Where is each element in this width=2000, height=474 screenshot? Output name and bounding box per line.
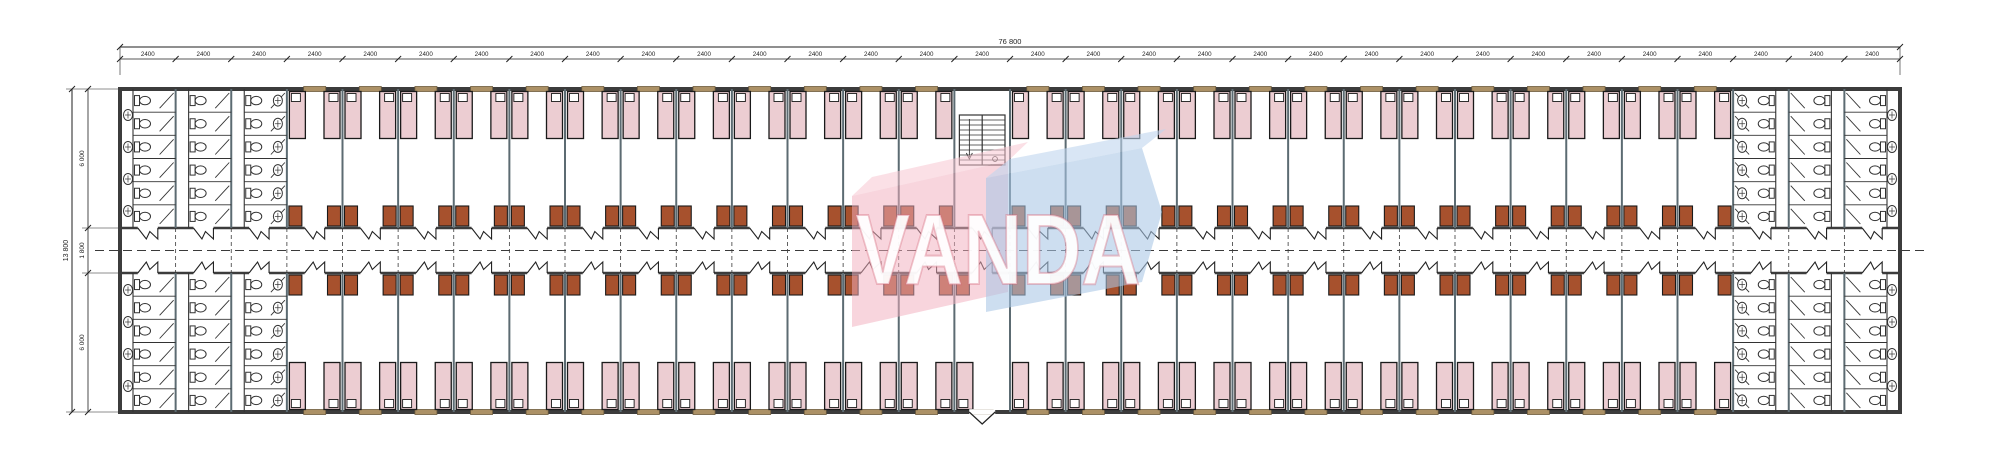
window	[1639, 87, 1661, 92]
pillow	[903, 400, 912, 408]
pillow	[1275, 400, 1284, 408]
dimension-label: 2400	[363, 51, 377, 58]
wc-icon	[1870, 189, 1881, 197]
pillow	[848, 400, 857, 408]
door-opening	[305, 225, 325, 230]
door-opening	[1640, 225, 1660, 230]
room-module-top	[567, 87, 619, 240]
pillow	[1608, 94, 1617, 102]
wc-icon	[1758, 96, 1769, 104]
wardrobe	[1235, 206, 1248, 226]
wc-icon	[1825, 280, 1830, 290]
pillow	[1664, 94, 1673, 102]
dimension-label: 2400	[1810, 51, 1824, 58]
pillow	[1070, 400, 1079, 408]
wardrobe	[1568, 275, 1581, 295]
pillow	[1163, 94, 1172, 102]
wardrobe	[1457, 206, 1470, 226]
door-opening	[969, 409, 995, 415]
pillow	[1515, 94, 1524, 102]
pillow	[347, 400, 356, 408]
dimension-label: 2400	[642, 51, 656, 58]
pillow	[736, 94, 745, 102]
wc-icon	[135, 211, 140, 221]
door-opening	[1250, 270, 1270, 275]
pillow	[1497, 400, 1506, 408]
sanitary-bay	[189, 273, 232, 412]
pillow	[1404, 94, 1413, 102]
wc-icon	[195, 189, 206, 197]
watermark-text: VANDA	[856, 194, 1141, 306]
dimension-label: 2400	[197, 51, 211, 58]
wardrobe	[1290, 206, 1303, 226]
wardrobe	[494, 206, 507, 226]
window	[1583, 87, 1605, 92]
window	[1082, 410, 1104, 415]
wc-icon	[1870, 327, 1881, 335]
door-opening	[1417, 270, 1437, 275]
wc-icon	[190, 165, 195, 175]
wc-icon	[251, 327, 262, 335]
door-opening	[1640, 270, 1660, 275]
pillow	[1682, 94, 1691, 102]
dimension-label: 2400	[1476, 51, 1490, 58]
door-opening	[805, 225, 825, 230]
window	[1472, 87, 1494, 92]
pillow	[1330, 94, 1339, 102]
pillow	[1515, 400, 1524, 408]
pillow	[1460, 94, 1469, 102]
room-module-top	[790, 87, 842, 240]
wc-icon	[251, 120, 262, 128]
window	[1305, 410, 1327, 415]
pillow	[1181, 94, 1190, 102]
wardrobe	[1457, 275, 1470, 295]
wc-icon	[251, 212, 262, 220]
wardrobe	[328, 206, 341, 226]
wardrobe	[400, 206, 413, 226]
wardrobe	[345, 206, 358, 226]
pillow	[1571, 400, 1580, 408]
wardrobe	[1624, 275, 1637, 295]
wardrobe	[439, 275, 452, 295]
pillow	[830, 400, 839, 408]
wc-icon	[1881, 326, 1886, 336]
pillow	[1720, 94, 1729, 102]
pillow	[1293, 94, 1302, 102]
wc-icon	[140, 396, 151, 404]
room-module-bottom	[1290, 262, 1342, 415]
wc-icon	[140, 120, 151, 128]
wc-icon	[135, 188, 140, 198]
wc-icon	[135, 280, 140, 290]
wc-icon	[1814, 304, 1825, 312]
wardrobe	[1496, 206, 1509, 226]
door-opening	[1751, 270, 1771, 275]
wc-icon	[1769, 188, 1774, 198]
wc-icon	[246, 326, 251, 336]
door-opening	[527, 225, 547, 230]
wardrobe	[678, 275, 691, 295]
window	[1527, 87, 1549, 92]
wc-icon	[246, 165, 251, 175]
wc-icon	[251, 350, 262, 358]
floor-plan-svg: 76 8002400240024002400240024002400240024…	[0, 0, 2000, 474]
door-opening	[138, 225, 158, 230]
wardrobe	[1401, 275, 1414, 295]
room-module-top	[1346, 87, 1398, 240]
wc-icon	[135, 395, 140, 405]
wc-icon	[1825, 188, 1830, 198]
wardrobe	[328, 275, 341, 295]
dimension-label: 2400	[141, 51, 155, 58]
wardrobe	[773, 206, 786, 226]
wardrobe	[1551, 275, 1564, 295]
room-module-top	[456, 87, 508, 240]
door-opening	[360, 225, 380, 230]
door-opening	[416, 270, 436, 275]
wc-icon	[195, 166, 206, 174]
pillow	[1108, 400, 1117, 408]
window	[1249, 87, 1271, 92]
pillow	[1386, 94, 1395, 102]
wc-icon	[251, 280, 262, 288]
sanitary-right	[1733, 89, 1896, 412]
pillow	[941, 94, 950, 102]
pillow	[385, 400, 394, 408]
door-opening	[638, 225, 658, 230]
room-module-top	[289, 87, 341, 240]
wardrobe	[383, 206, 396, 226]
dimension-label: 2400	[1365, 51, 1379, 58]
door-opening	[193, 270, 213, 275]
room-module-top	[511, 87, 563, 240]
window	[526, 87, 548, 92]
pillow	[496, 94, 505, 102]
room-module-top	[734, 87, 786, 240]
window	[359, 410, 381, 415]
wardrobe	[1607, 206, 1620, 226]
pillow	[1682, 400, 1691, 408]
dimension-label: 2400	[475, 51, 489, 58]
wardrobe	[1718, 275, 1731, 295]
pillow	[663, 400, 672, 408]
pillow	[1126, 400, 1135, 408]
pillow	[1553, 94, 1562, 102]
pillow	[1052, 94, 1061, 102]
door-opening	[694, 225, 714, 230]
wardrobe	[289, 206, 302, 226]
dimension-label: 2400	[586, 51, 600, 58]
window	[304, 410, 326, 415]
wc-icon	[1870, 373, 1881, 381]
pillow	[1571, 94, 1580, 102]
pillow	[1497, 94, 1506, 102]
wc-icon	[140, 189, 151, 197]
window	[1138, 87, 1160, 92]
dimension-label: 2400	[1532, 51, 1546, 58]
wardrobe	[400, 275, 413, 295]
window	[916, 87, 938, 92]
wardrobe	[1663, 275, 1676, 295]
wc-icon	[1814, 373, 1825, 381]
wc-icon	[195, 327, 206, 335]
room-module-bottom	[790, 262, 842, 415]
room-module-bottom	[1624, 262, 1676, 415]
wc-icon	[195, 96, 206, 104]
wc-icon	[190, 372, 195, 382]
wardrobe	[494, 275, 507, 295]
wardrobe	[606, 206, 619, 226]
pillow	[959, 400, 968, 408]
window	[804, 87, 826, 92]
pillow	[1348, 400, 1357, 408]
door-opening	[249, 270, 269, 275]
door-opening	[1695, 270, 1715, 275]
window	[1138, 410, 1160, 415]
wc-icon	[246, 188, 251, 198]
wc-icon	[1870, 396, 1881, 404]
wardrobe	[383, 275, 396, 295]
wc-icon	[1870, 120, 1881, 128]
wc-icon	[140, 373, 151, 381]
pillow	[736, 400, 745, 408]
room-module-bottom	[678, 262, 730, 415]
window	[1639, 410, 1661, 415]
wc-icon	[1758, 396, 1769, 404]
sanitary-bay	[1844, 89, 1887, 228]
wc-icon	[1814, 280, 1825, 288]
wardrobe	[1218, 206, 1231, 226]
pillow	[1237, 94, 1246, 102]
window	[1027, 410, 1049, 415]
dimension-label: 1 800	[79, 242, 86, 259]
wc-icon	[1881, 372, 1886, 382]
window	[526, 410, 548, 415]
door-opening	[694, 270, 714, 275]
wardrobe	[606, 275, 619, 295]
wardrobe	[1513, 275, 1526, 295]
wardrobe	[717, 206, 730, 226]
wc-icon	[195, 120, 206, 128]
wc-icon	[190, 119, 195, 129]
wardrobe	[1440, 206, 1453, 226]
wc-icon	[140, 350, 151, 358]
wc-icon	[1769, 211, 1774, 221]
room-module-top	[1680, 87, 1732, 240]
sanitary-bay	[1733, 273, 1776, 412]
pillow	[458, 94, 467, 102]
wc-icon	[140, 143, 151, 151]
pillow	[1015, 94, 1024, 102]
wardrobe	[734, 206, 747, 226]
pillow	[625, 94, 634, 102]
wardrobe	[1162, 275, 1175, 295]
room-module-top	[1401, 87, 1453, 240]
wc-icon	[246, 211, 251, 221]
window	[1361, 87, 1383, 92]
door-opening	[1362, 225, 1382, 230]
wardrobe	[1235, 275, 1248, 295]
wardrobe	[1496, 275, 1509, 295]
wc-icon	[251, 96, 262, 104]
pillow	[514, 94, 523, 102]
room-module-bottom	[623, 262, 675, 415]
wardrobe	[1607, 275, 1620, 295]
wc-icon	[1825, 96, 1830, 106]
wc-icon	[1769, 349, 1774, 359]
wardrobe	[1329, 275, 1342, 295]
wc-icon	[251, 166, 262, 174]
wc-icon	[1814, 96, 1825, 104]
door-opening	[638, 270, 658, 275]
wardrobe	[1346, 206, 1359, 226]
pillow	[774, 94, 783, 102]
door-opening	[1362, 270, 1382, 275]
wc-icon	[1814, 212, 1825, 220]
window	[637, 410, 659, 415]
door-opening	[1306, 225, 1326, 230]
wc-icon	[1825, 119, 1830, 129]
door-opening	[583, 225, 603, 230]
window	[1305, 87, 1327, 92]
wc-icon	[135, 165, 140, 175]
wc-icon	[1870, 143, 1881, 151]
wc-icon	[135, 96, 140, 106]
wc-icon	[190, 96, 195, 106]
door-opening	[583, 270, 603, 275]
sanitary-bay	[133, 273, 176, 412]
door-opening	[1862, 225, 1882, 230]
pillow	[1348, 94, 1357, 102]
pillow	[1275, 94, 1284, 102]
dimension-label: 2400	[920, 51, 934, 58]
pillow	[830, 94, 839, 102]
dimension-label: 2400	[1198, 51, 1212, 58]
wardrobe	[1384, 275, 1397, 295]
dimension-label: 2400	[252, 51, 266, 58]
sanitary-bay	[244, 89, 287, 228]
window	[415, 410, 437, 415]
sanitary-bay	[189, 89, 232, 228]
window	[1194, 410, 1216, 415]
wardrobe	[1718, 206, 1731, 226]
room-module-bottom	[734, 262, 786, 415]
dimension-label: 2400	[697, 51, 711, 58]
dimension-label: 2400	[808, 51, 822, 58]
pillow	[607, 94, 616, 102]
sanitary-bay	[1789, 273, 1832, 412]
wardrobe	[289, 275, 302, 295]
dimension-label: 2400	[975, 51, 989, 58]
window	[1583, 410, 1605, 415]
pillow	[1181, 400, 1190, 408]
wardrobe	[1663, 206, 1676, 226]
wc-icon	[1814, 327, 1825, 335]
window	[1527, 410, 1549, 415]
wc-icon	[1758, 166, 1769, 174]
pillow	[1126, 94, 1135, 102]
pillow	[1460, 400, 1469, 408]
wardrobe	[1551, 206, 1564, 226]
door-opening	[1306, 270, 1326, 275]
wc-icon	[190, 280, 195, 290]
room-module-bottom	[1401, 262, 1453, 415]
wardrobe	[678, 206, 691, 226]
wc-icon	[1814, 120, 1825, 128]
pillow	[1052, 400, 1061, 408]
dimension-label: 13 800	[63, 240, 70, 262]
wc-icon	[1825, 372, 1830, 382]
pillow	[718, 400, 727, 408]
dimension-label: 6 000	[79, 334, 86, 351]
pillow	[1720, 400, 1729, 408]
pillow	[681, 400, 690, 408]
wc-icon	[1825, 349, 1830, 359]
wc-icon	[1769, 96, 1774, 106]
wc-icon	[251, 143, 262, 151]
room-module-bottom	[289, 262, 341, 415]
pillow	[1219, 94, 1228, 102]
wc-icon	[246, 395, 251, 405]
pillow	[552, 400, 561, 408]
wc-icon	[1881, 211, 1886, 221]
window	[637, 87, 659, 92]
door-opening	[1417, 225, 1437, 230]
wc-icon	[190, 303, 195, 313]
wc-icon	[251, 189, 262, 197]
wc-icon	[1769, 303, 1774, 313]
wc-icon	[1758, 143, 1769, 151]
wc-icon	[1758, 327, 1769, 335]
wardrobe	[567, 206, 580, 226]
wardrobe	[623, 275, 636, 295]
wc-icon	[195, 280, 206, 288]
wardrobe	[1179, 206, 1192, 226]
wardrobe	[1680, 206, 1693, 226]
wardrobe	[1624, 206, 1637, 226]
door-opening	[305, 270, 325, 275]
dimension-label: 6 000	[79, 150, 86, 167]
wardrobe	[1568, 206, 1581, 226]
door-opening	[1528, 270, 1548, 275]
pillow	[792, 94, 801, 102]
wc-icon	[1870, 212, 1881, 220]
pillow	[347, 94, 356, 102]
wardrobe	[1384, 206, 1397, 226]
door-opening	[193, 225, 213, 230]
wc-icon	[1881, 142, 1886, 152]
wc-icon	[1758, 280, 1769, 288]
room-module-top	[1568, 87, 1620, 240]
wardrobe	[1440, 275, 1453, 295]
wc-icon	[140, 96, 151, 104]
wc-icon	[1769, 372, 1774, 382]
door-opening	[472, 225, 492, 230]
window	[749, 87, 771, 92]
room-module-top	[1457, 87, 1509, 240]
room-module-bottom	[1235, 262, 1287, 415]
window	[1416, 87, 1438, 92]
wardrobe	[828, 206, 841, 226]
window	[1472, 410, 1494, 415]
wc-icon	[1769, 119, 1774, 129]
door-opening	[1473, 225, 1493, 230]
wc-icon	[190, 326, 195, 336]
wc-icon	[246, 96, 251, 106]
dimension-label: 2400	[1309, 51, 1323, 58]
wardrobe	[511, 206, 524, 226]
